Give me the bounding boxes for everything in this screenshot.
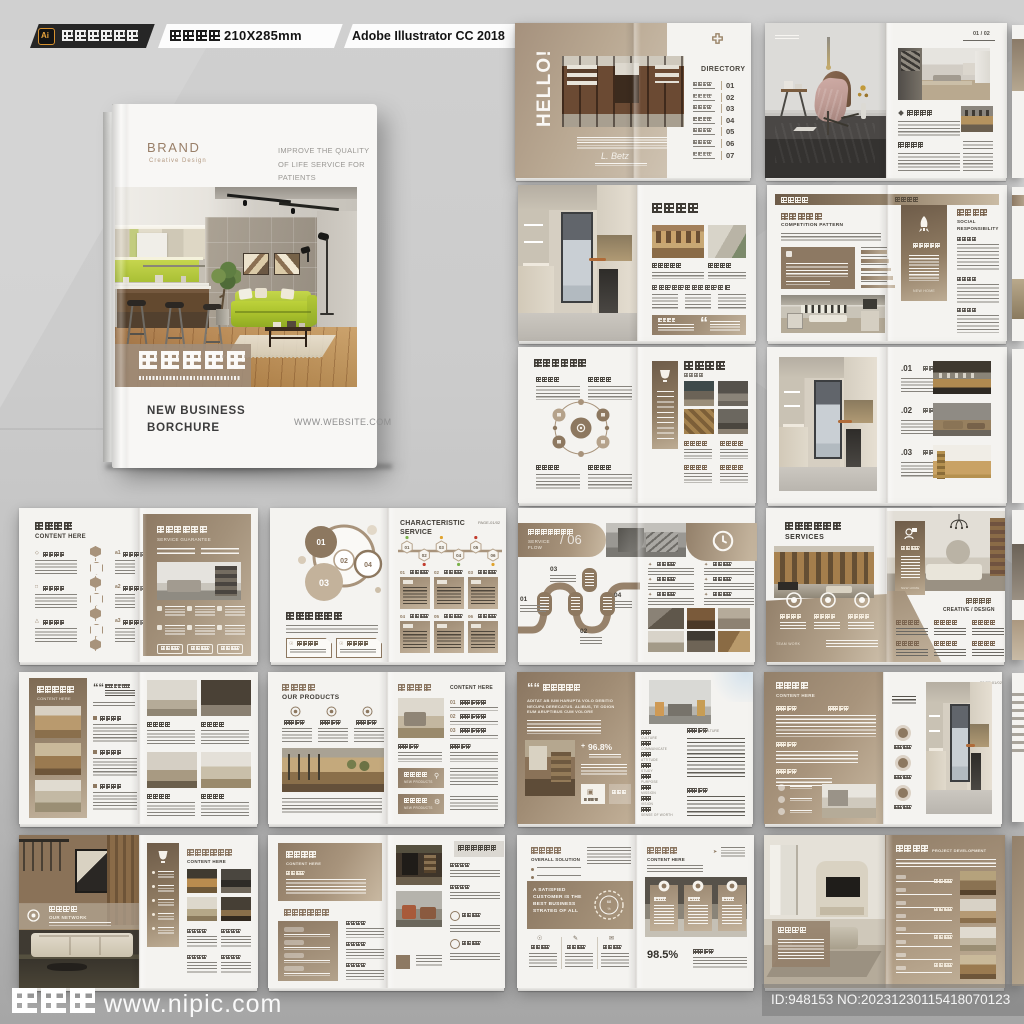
svg-text:%: %: [607, 907, 610, 911]
svg-text:01: 01: [404, 545, 410, 550]
svg-text:02: 02: [340, 558, 348, 565]
svg-text:03: 03: [319, 578, 329, 588]
svg-text:06: 06: [490, 553, 496, 558]
svg-text:02: 02: [422, 553, 428, 558]
svg-text:04: 04: [364, 562, 372, 569]
svg-text:68: 68: [607, 899, 612, 904]
svg-text:03: 03: [439, 545, 445, 550]
svg-text:05: 05: [473, 545, 479, 550]
svg-text:04: 04: [456, 553, 462, 558]
svg-text:01: 01: [317, 538, 326, 547]
